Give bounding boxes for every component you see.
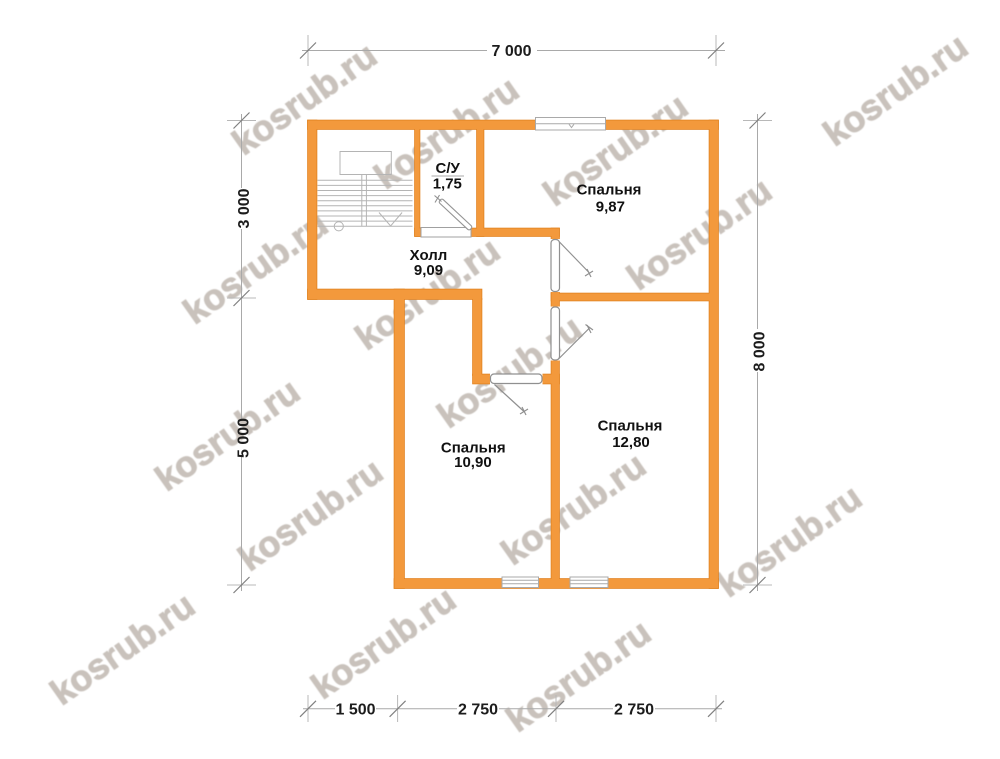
svg-text:Спальня: Спальня	[577, 182, 642, 199]
svg-text:1 500: 1 500	[335, 702, 375, 719]
svg-text:7 000: 7 000	[491, 43, 531, 60]
svg-text:9,87: 9,87	[596, 199, 625, 216]
svg-text:10,90: 10,90	[454, 454, 492, 471]
svg-text:Спальня: Спальня	[598, 418, 663, 435]
svg-text:3 000: 3 000	[236, 188, 253, 228]
svg-text:1,75: 1,75	[433, 176, 462, 193]
svg-text:2 750: 2 750	[458, 702, 498, 719]
svg-text:8 000: 8 000	[752, 331, 769, 371]
svg-text:С/У: С/У	[436, 160, 461, 177]
svg-text:5 000: 5 000	[236, 418, 253, 458]
svg-text:9,09: 9,09	[414, 262, 443, 279]
svg-text:12,80: 12,80	[612, 434, 650, 451]
svg-text:2 750: 2 750	[614, 702, 654, 719]
